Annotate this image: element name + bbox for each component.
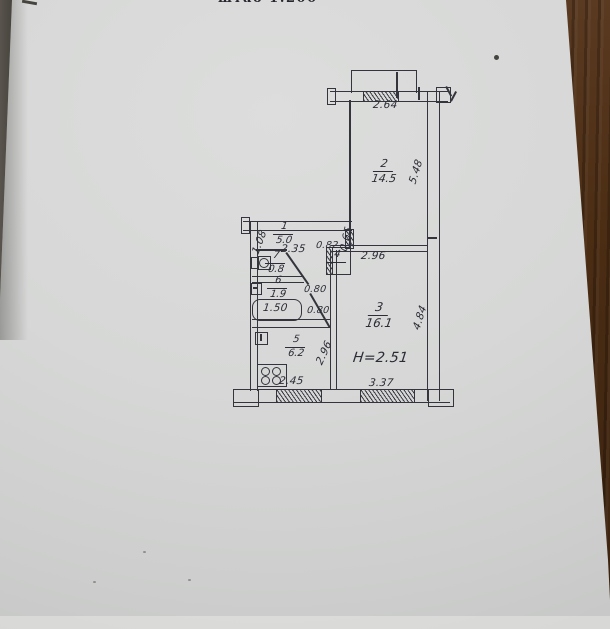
top-wall-left-pilaster — [327, 88, 336, 105]
bottom-outer-wall — [233, 389, 450, 403]
bottom-left-pilaster — [233, 389, 259, 407]
right-outer-wall — [427, 91, 440, 401]
paper-sheet: штаб 1:200 — [0, 0, 610, 629]
bottom-right-pilaster — [428, 389, 454, 407]
wall-break-squiggle — [450, 91, 457, 101]
dim-closet-door: 0.82 — [315, 240, 339, 251]
floor-plan: 2 14.5 1 5.0 3 16.1 4 5 6.2 6 1.9 — [0, 0, 610, 629]
kitchen-number: 5 — [285, 335, 307, 348]
closet-label: 4 — [327, 250, 343, 263]
dim-balcony-window: 2.64 — [372, 99, 398, 111]
photo-of-floor-plan-sheet: штаб 1:200 — [0, 0, 610, 629]
hole-punch-mark — [494, 55, 499, 60]
kitchen-window — [276, 389, 322, 403]
kitchen-area: 6.2 — [282, 348, 310, 360]
room3-number: 3 — [368, 301, 390, 316]
vent-icon — [260, 334, 262, 341]
bath-number: 6 — [267, 276, 289, 289]
dim-kitchen-width: 2.45 — [278, 375, 304, 387]
door-dimension-tick — [418, 87, 420, 100]
room3-area: 16.1 — [357, 316, 401, 330]
wc-area: 0.8 — [262, 264, 290, 276]
dim-bath-door: 0.80 — [306, 305, 330, 316]
hall-left-pilaster — [241, 217, 250, 234]
room2-area: 14.5 — [363, 172, 405, 185]
hall-number: 1 — [273, 222, 295, 235]
room3-window — [360, 389, 415, 403]
dim-room3-width-bottom: 3.37 — [368, 377, 394, 389]
paper-speck — [93, 581, 96, 583]
sink-icon — [253, 287, 258, 289]
kitchen-label: 5 6.2 — [283, 335, 309, 359]
dim-tub-length: 1.50 — [262, 302, 288, 314]
bath-area: 1.9 — [264, 289, 292, 301]
stove-burner-icon — [261, 367, 270, 376]
balcony-outline — [351, 70, 417, 93]
table-edge-highlight — [0, 616, 610, 629]
paper-speck — [188, 579, 191, 581]
room2-number: 2 — [373, 158, 395, 172]
window-dimension-tick — [396, 72, 398, 98]
vent-icon — [255, 332, 268, 345]
dim-ceiling-height: H=2.51 — [352, 350, 409, 366]
dim-wc-door: 0.80 — [303, 284, 327, 295]
right-wall-connector — [428, 237, 437, 239]
stove-burner-icon — [261, 376, 270, 385]
dim-room2-depth: 5.48 — [407, 157, 425, 185]
sink-icon — [251, 283, 262, 295]
paper-speck — [143, 551, 146, 553]
bath-label: 6 1.9 — [265, 276, 291, 300]
room2-label: 2 14.5 — [364, 158, 404, 184]
closet-number: 4 — [326, 250, 348, 263]
dim-room3-width-top: 2.96 — [360, 250, 386, 262]
dim-hall-width: 2.35 — [280, 243, 306, 255]
room3-label: 3 16.1 — [358, 301, 400, 329]
